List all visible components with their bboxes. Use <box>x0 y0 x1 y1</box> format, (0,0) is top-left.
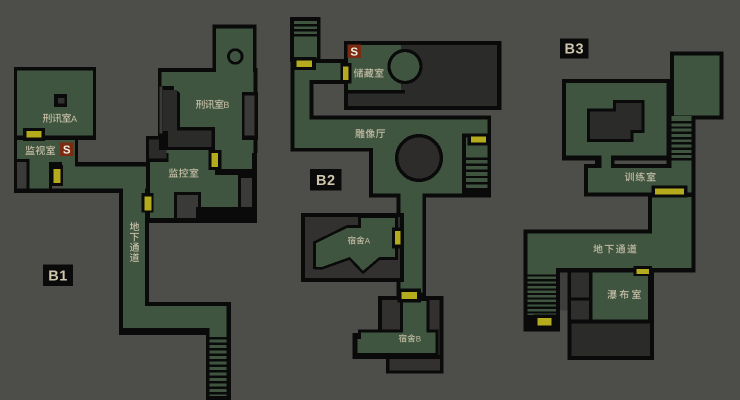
svg-text:A: A <box>71 114 77 124</box>
svg-text:B: B <box>223 100 229 110</box>
svg-text:B: B <box>416 334 421 343</box>
svg-text:S: S <box>63 145 71 157</box>
svg-text:B2: B2 <box>316 173 336 189</box>
svg-text:B3: B3 <box>564 42 584 58</box>
svg-text:S: S <box>350 47 358 59</box>
svg-text:B1: B1 <box>48 268 68 284</box>
svg-text:A: A <box>365 236 371 245</box>
